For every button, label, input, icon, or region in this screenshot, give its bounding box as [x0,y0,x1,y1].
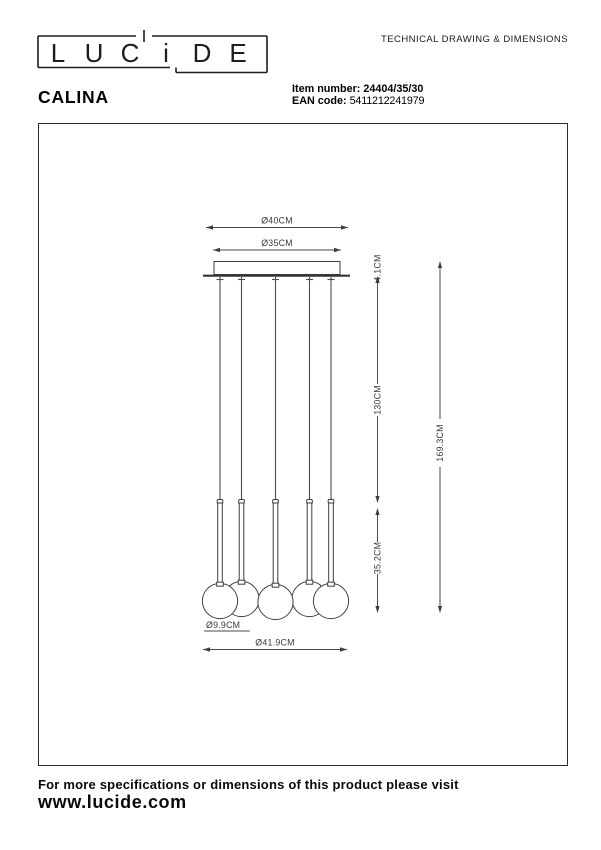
website-link[interactable]: www.lucide.com [38,792,187,813]
dimension-canopy-outer: Ø40CM [206,216,348,230]
dim-label-overall-width: Ø41.9CM [255,638,294,648]
dimension-chain-vertical: 4.1CM 130CM 35.2CM [373,254,383,613]
spec-sheet-page: L U C i D E TECHNICAL DRAWING & DIMENSIO… [0,0,601,850]
technical-drawing: Ø40CM Ø35CM [0,0,601,850]
suspension-cords [217,277,335,501]
dim-label-cord-length: 130CM [373,385,383,415]
dim-label-canopy-inner: Ø35CM [261,238,293,248]
dim-label-globe-diameter: Ø9.9CM [206,620,240,630]
dim-label-total-height: 169.3CM [435,424,445,461]
dimension-total-height: 169.3CM [435,261,445,613]
footer-note: For more specifications or dimensions of… [38,777,459,792]
ceiling-canopy [203,262,350,276]
pendant-stems [217,500,334,587]
dim-label-pendant-height: 35.2CM [373,542,383,574]
dimension-overall-width: Ø41.9CM [203,638,347,652]
dim-label-canopy-outer: Ø40CM [261,216,293,226]
dimension-canopy-inner: Ø35CM [213,238,341,252]
dimension-globe-diameter: Ø9.9CM [204,620,250,631]
